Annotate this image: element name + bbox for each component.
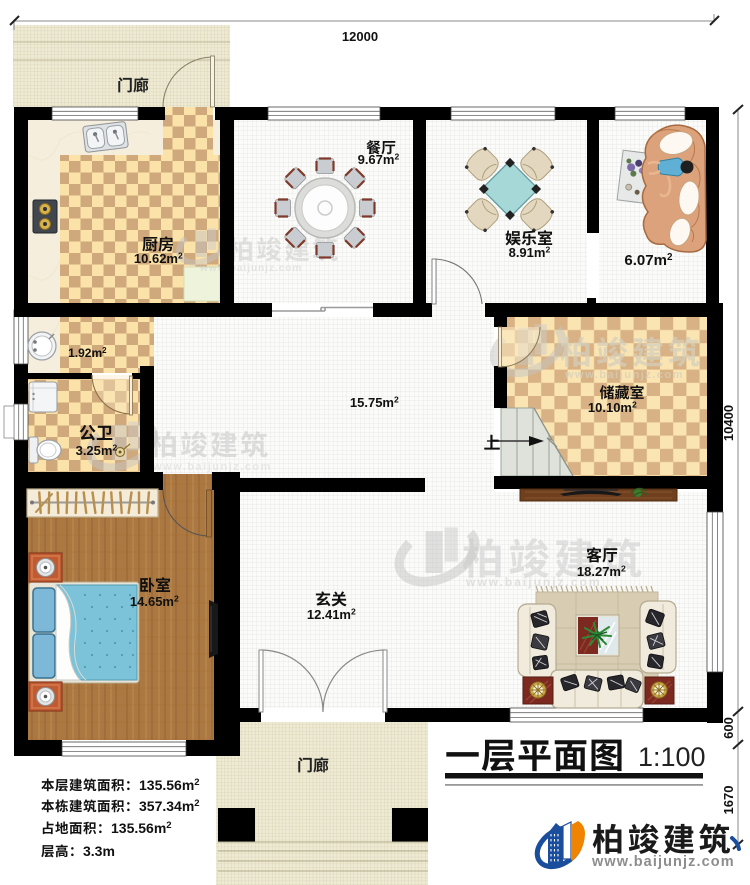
svg-text:135.56m2: 135.56m2 xyxy=(111,820,172,836)
svg-text:14.65m2: 14.65m2 xyxy=(130,594,179,610)
svg-text:10.10m2: 10.10m2 xyxy=(588,400,637,416)
svg-text:357.34m2: 357.34m2 xyxy=(139,798,200,814)
svg-text:15.75m2: 15.75m2 xyxy=(350,395,399,411)
svg-text:www.baijunjz.com: www.baijunjz.com xyxy=(564,369,684,381)
svg-text:www.baijunjz.com: www.baijunjz.com xyxy=(591,854,735,870)
svg-text:12000: 12000 xyxy=(342,29,378,44)
svg-text:18.27m2: 18.27m2 xyxy=(577,564,626,580)
svg-text:1670: 1670 xyxy=(721,786,736,815)
svg-text:135.56m2: 135.56m2 xyxy=(139,777,200,793)
svg-text:10.62m2: 10.62m2 xyxy=(134,251,183,267)
svg-text:9.67m2: 9.67m2 xyxy=(358,152,400,168)
svg-text:www.baijunjz.com: www.baijunjz.com xyxy=(199,263,302,274)
svg-text:6.07m2: 6.07m2 xyxy=(624,252,673,269)
svg-text:8.91m2: 8.91m2 xyxy=(509,245,551,261)
svg-text:12.41m2: 12.41m2 xyxy=(307,607,356,623)
svg-text:600: 600 xyxy=(721,717,736,739)
svg-text:10400: 10400 xyxy=(721,405,736,441)
svg-text:www.baijunjz.com: www.baijunjz.com xyxy=(152,461,272,473)
svg-text:3.25m2: 3.25m2 xyxy=(76,443,118,459)
svg-text:1.92m2: 1.92m2 xyxy=(68,346,107,360)
svg-text:1:100: 1:100 xyxy=(638,742,706,772)
svg-text:3.3m: 3.3m xyxy=(83,843,115,859)
